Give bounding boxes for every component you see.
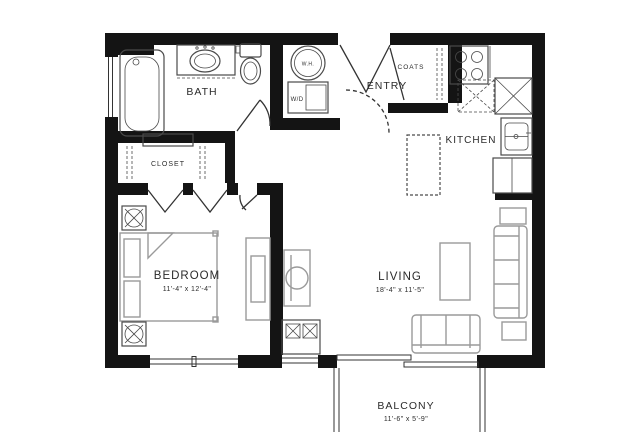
room-label-coats: COATS	[398, 64, 425, 71]
room-labels: BATH CLOSET ENTRY COATS KITCHEN BEDROOM …	[151, 62, 496, 424]
room-label-balcony: BALCONY	[377, 400, 434, 412]
room-label-kitchen: KITCHEN	[446, 135, 497, 146]
bed-pillow	[124, 239, 140, 277]
bedroom-door-leaf	[242, 195, 257, 209]
room-label-closet: CLOSET	[151, 161, 185, 168]
wall-bedroom-top-a	[118, 183, 148, 195]
walls	[105, 33, 545, 368]
bed-sheet-fold	[148, 233, 173, 258]
utility-box	[282, 320, 320, 354]
sofa-bottom	[412, 315, 480, 353]
faucet-dot	[196, 47, 198, 49]
side-table	[500, 208, 526, 224]
kitchen-island-dashed	[407, 135, 440, 195]
bedroom-window	[150, 357, 238, 367]
wall-fridge-stub	[495, 193, 532, 200]
bathtub-drain	[133, 59, 139, 65]
window-mullion	[192, 357, 196, 367]
tv-console	[284, 250, 310, 306]
room-label-bath: BATH	[186, 86, 217, 98]
dresser	[246, 238, 270, 320]
room-dims-balcony: 11'-6" x 5'-9"	[384, 416, 428, 423]
vanity-sink-inner	[195, 54, 216, 68]
floor-plan: BATH CLOSET ENTRY COATS KITCHEN BEDROOM …	[0, 0, 640, 432]
label-washer-dryer: W/D	[291, 97, 304, 103]
bedroom-door-arc	[240, 195, 246, 210]
room-label-living: LIVING	[378, 271, 422, 283]
utility-closet	[282, 320, 320, 354]
coffee-table	[440, 243, 470, 300]
utility-door	[282, 358, 318, 363]
wall-bedroom-top-post1	[183, 183, 193, 195]
room-dims-living: 18'-4" x 11'-5"	[376, 287, 425, 294]
tv-stand	[284, 250, 310, 306]
bed-pillow	[124, 281, 140, 317]
floor-plan-canvas: BATH CLOSET ENTRY COATS KITCHEN BEDROOM …	[0, 0, 640, 432]
sliding-panel	[404, 362, 478, 367]
sliding-panel	[337, 355, 411, 360]
side-table	[502, 322, 526, 340]
ceiling-fixture	[122, 322, 146, 346]
balcony-sliding-door	[337, 355, 478, 367]
closet-bifold-door-1	[148, 190, 183, 212]
room-label-bedroom: BEDROOM	[154, 270, 220, 282]
wall-coats-bottom	[388, 103, 448, 113]
wall-entry-bottom	[283, 118, 340, 130]
bathtub-inner	[125, 57, 159, 131]
kitchen-fixtures	[407, 46, 532, 195]
refrigerator	[493, 158, 532, 193]
wall-bottom-a	[105, 355, 150, 368]
wall-top-left	[105, 33, 338, 45]
label-water-heater: W.H.	[302, 62, 314, 68]
wall-bedroom-top-post2	[227, 183, 238, 195]
wall-bedroom-top-b	[257, 183, 283, 195]
bath-door-leaf	[237, 100, 260, 131]
wall-bath-right	[270, 45, 283, 130]
tv-base	[286, 267, 308, 289]
wall-left-lower	[105, 117, 118, 368]
dresser-inner	[251, 256, 265, 302]
wall-bottom-b	[238, 355, 282, 368]
wall-bottom-c	[318, 355, 337, 368]
stove-burner	[472, 52, 483, 63]
room-dims-bedroom: 11'-4" x 12'-4"	[163, 286, 212, 293]
stove-burner	[472, 69, 483, 80]
coats-door-leaf	[390, 48, 404, 100]
toilet-tank	[240, 44, 261, 57]
sofa-outline	[494, 226, 527, 318]
wall-bottom-d	[477, 355, 545, 368]
closet-bifold-door-2	[193, 190, 227, 212]
wall-top-right	[390, 33, 545, 45]
wall-bath-bottom	[118, 131, 235, 143]
wall-right	[532, 33, 545, 368]
entry-living-dashed-arc	[346, 90, 389, 133]
wall-left-upper	[105, 33, 118, 57]
bath-door-arc	[260, 100, 270, 126]
bath-window	[109, 57, 113, 117]
toilet-bowl-inner	[244, 62, 257, 80]
washer-dryer-drum	[306, 85, 326, 110]
room-label-entry: ENTRY	[367, 80, 407, 92]
faucet-dot	[212, 47, 214, 49]
sofa-right	[494, 226, 527, 318]
bathtub	[120, 50, 164, 136]
faucet-dot	[204, 46, 206, 48]
wall-bedroom-living-divider	[270, 183, 283, 355]
ceiling-fixture	[122, 206, 146, 230]
wall-closet-right	[225, 143, 235, 183]
